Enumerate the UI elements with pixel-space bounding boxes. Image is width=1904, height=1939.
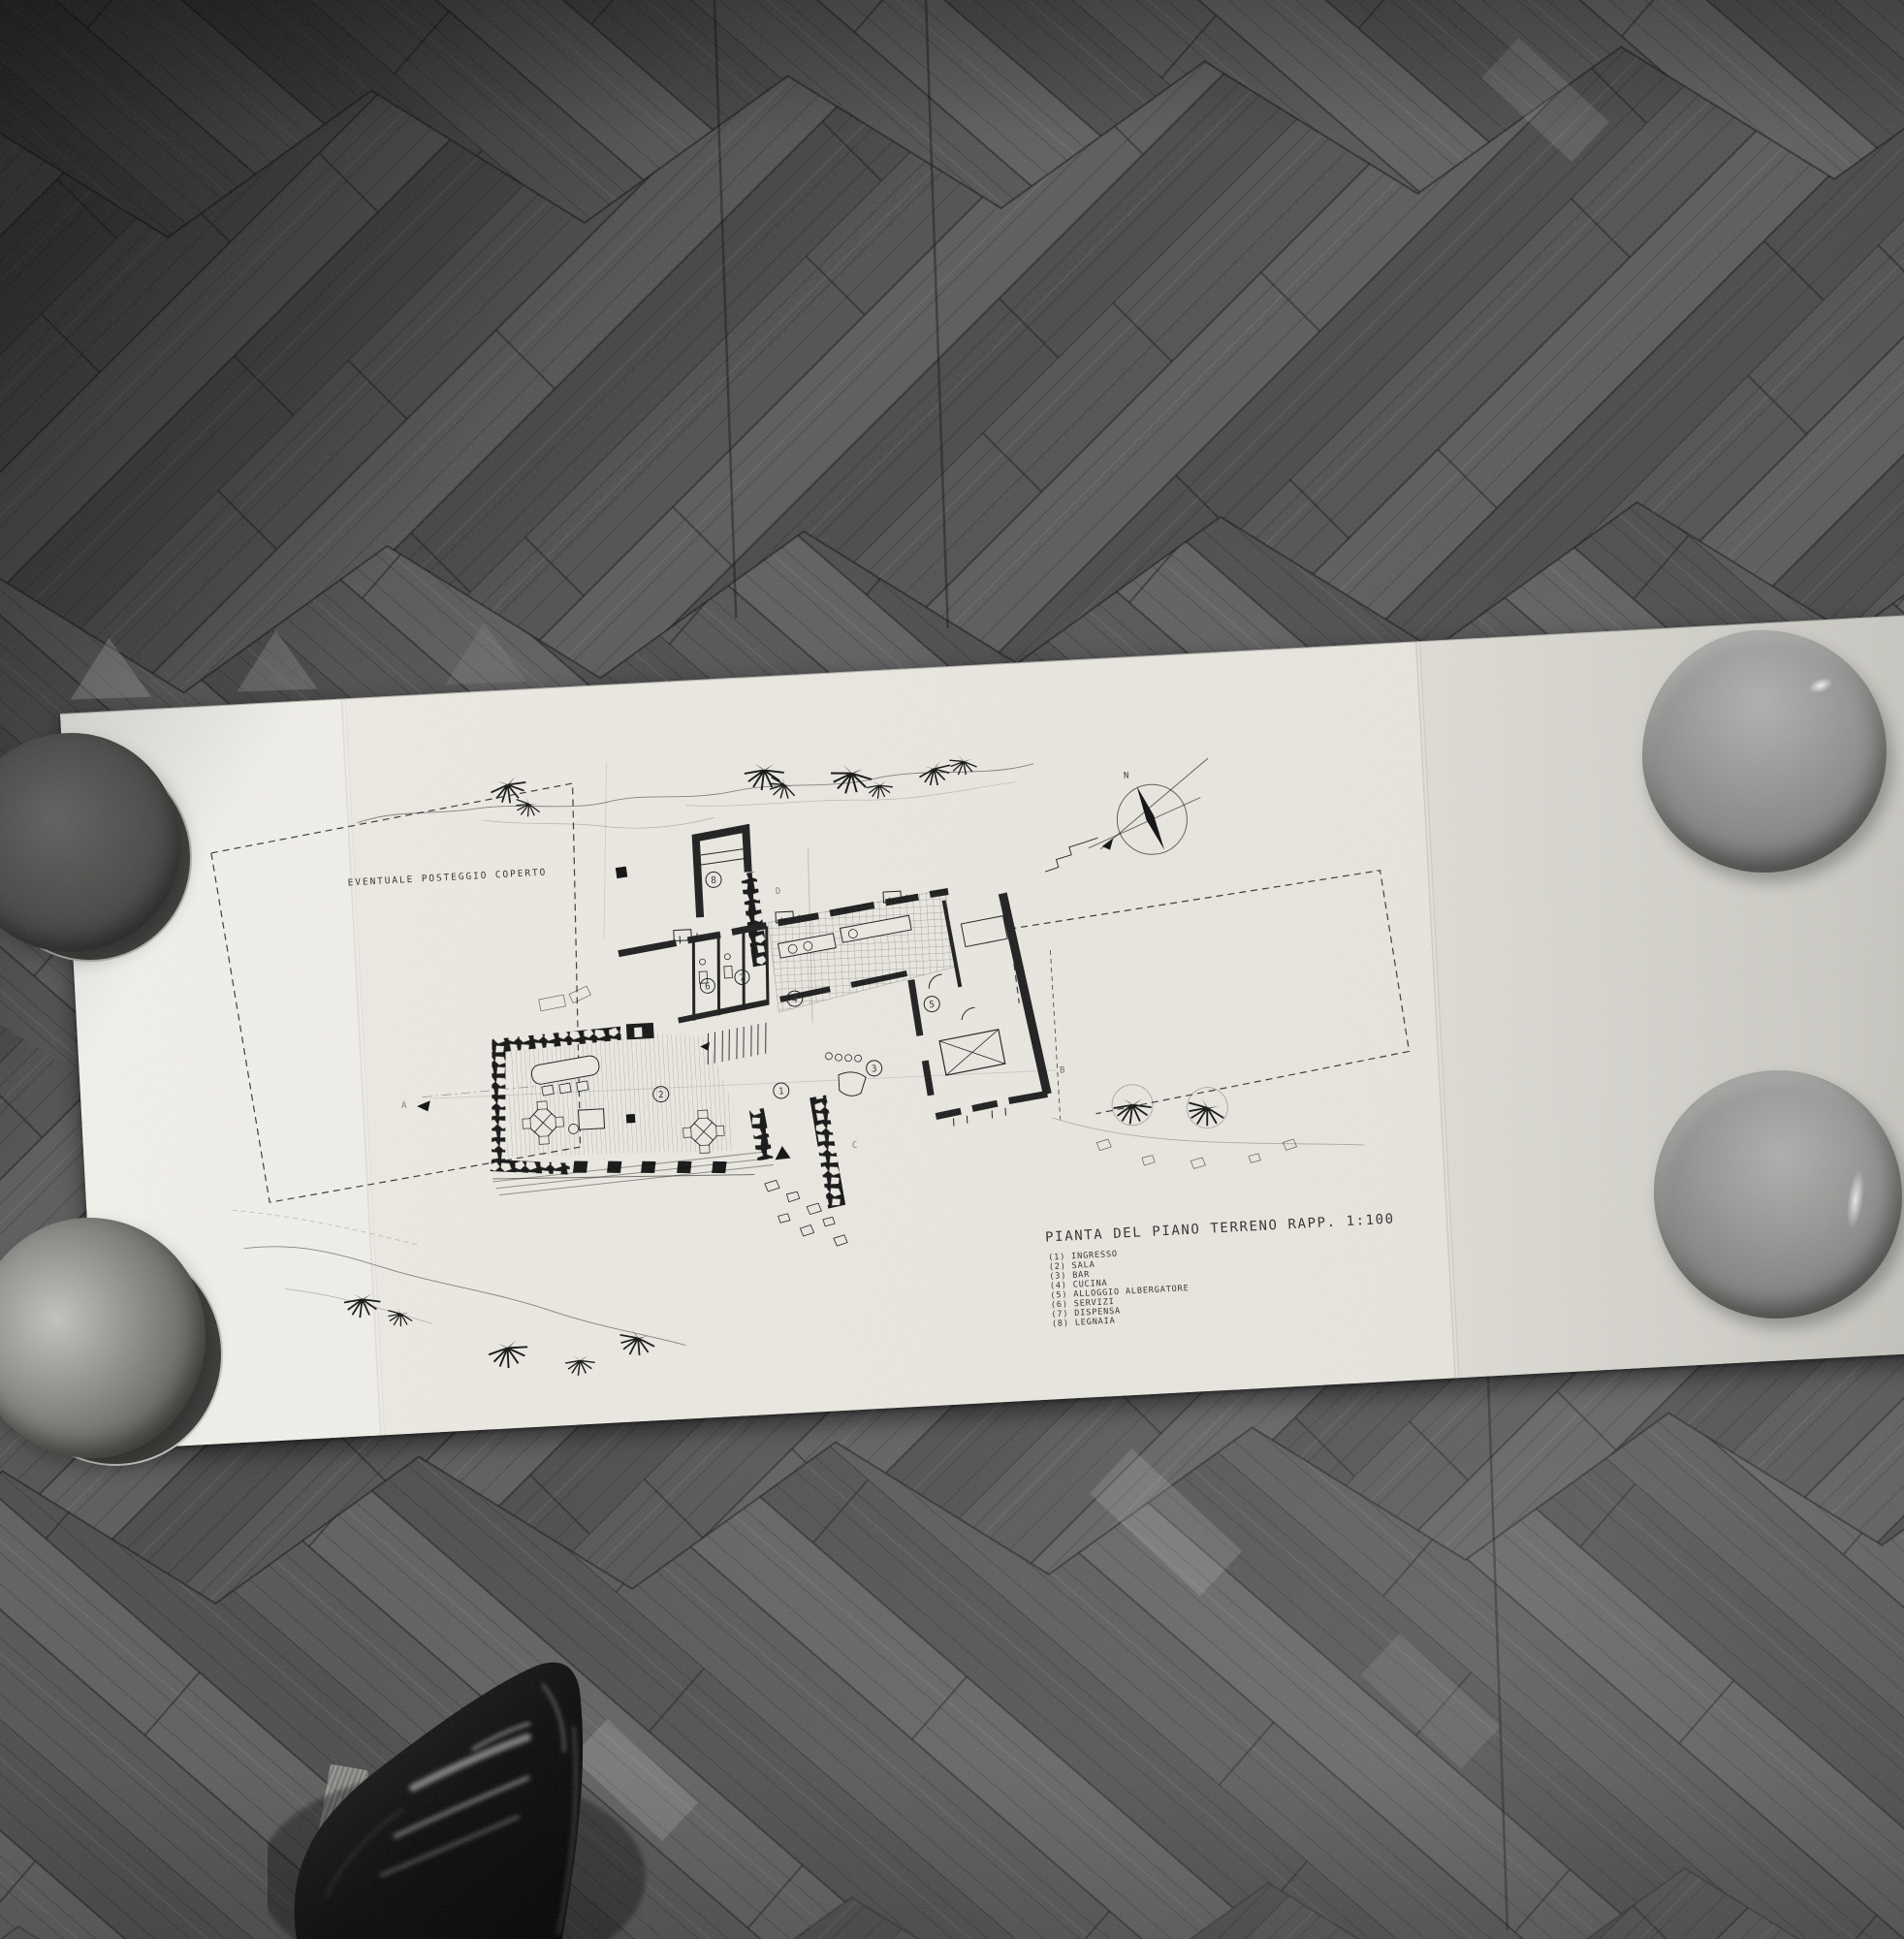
column <box>626 1114 635 1123</box>
room-number-7: 7 <box>735 969 750 985</box>
photograph: EVENTUALE POSTEGGIO COPERTO N A B C D <box>0 0 1904 1939</box>
compass-north-label: N <box>1124 771 1129 780</box>
paperweight-bowl-top-left <box>0 733 196 966</box>
section-arrow <box>417 1100 431 1112</box>
paperweight-bowl-bottom-right <box>1654 1070 1904 1322</box>
room-number-5: 5 <box>924 996 940 1012</box>
building-plan <box>473 813 1055 1264</box>
side-table <box>579 1109 605 1129</box>
room-number-1: 1 <box>773 1083 789 1099</box>
plan-legend: (1) INGRESSO (2) SALA (3) BAR (4) CUCINA… <box>1048 1246 1190 1329</box>
site-pier <box>616 867 627 878</box>
compass-rose: N <box>1084 758 1213 858</box>
svg-text:8: 8 <box>711 875 717 886</box>
wardrobe <box>939 1030 1005 1075</box>
svg-text:2: 2 <box>658 1090 664 1100</box>
photographer-shoe <box>268 1635 684 1939</box>
entrance-arrow <box>775 1146 791 1160</box>
contour-lines-top <box>356 764 1035 843</box>
paperweight-bowl-top-right <box>1642 630 1887 874</box>
specular-highlight <box>1843 1169 1866 1231</box>
contour-lines-lower-left <box>233 1187 687 1394</box>
svg-text:4: 4 <box>792 994 799 1004</box>
architectural-drawing-sheet: EVENTUALE POSTEGGIO COPERTO N A B C D <box>60 616 1904 1450</box>
parking-annotation: EVENTUALE POSTEGGIO COPERTO <box>347 868 547 889</box>
room-number-3: 3 <box>866 1060 882 1076</box>
section-marker-a: A <box>401 1101 408 1111</box>
section-marker-b: B <box>1060 1065 1065 1075</box>
tree-symbols-right <box>1051 1072 1365 1176</box>
tree-symbols-top <box>488 748 980 824</box>
legend-line-8: (8) LEGNAIA <box>1052 1317 1116 1329</box>
room-number-8: 8 <box>706 872 722 888</box>
plan-title: PIANTA DEL PIANO TERRENO RAPP. 1:100 <box>1045 1211 1395 1245</box>
room-legnaia <box>695 828 769 969</box>
bar-area <box>825 1051 867 1097</box>
outdoor-benches <box>538 986 591 1011</box>
stepped-path <box>1043 838 1099 872</box>
svg-text:1: 1 <box>778 1086 785 1097</box>
section-marker-c: C <box>852 1141 858 1151</box>
svg-text:3: 3 <box>872 1064 877 1074</box>
specular-highlight <box>1807 675 1835 696</box>
section-marker-d: D <box>776 887 781 897</box>
svg-text:6: 6 <box>705 981 712 992</box>
floor-plan-drawing: EVENTUALE POSTEGGIO COPERTO N A B C D <box>60 617 1904 1450</box>
svg-text:5: 5 <box>929 1000 935 1010</box>
room-number-6: 6 <box>700 978 715 994</box>
svg-text:7: 7 <box>739 972 745 983</box>
paperweight-bowl-bottom-left <box>0 1218 225 1472</box>
